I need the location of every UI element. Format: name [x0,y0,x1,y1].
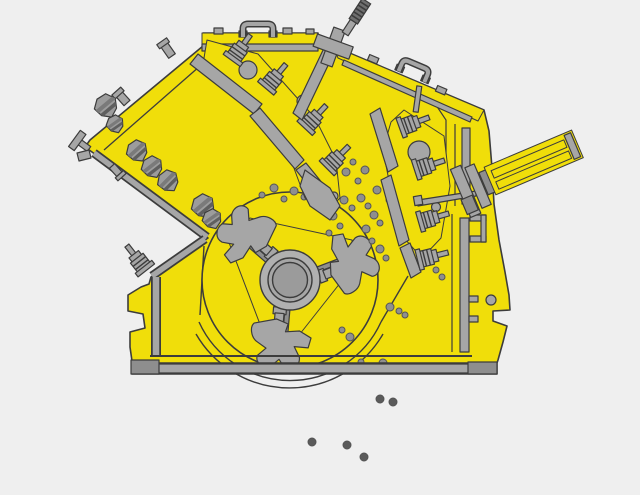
right-sill [468,362,497,374]
crushed-particle [377,220,383,226]
crushed-particle [342,168,350,176]
falling-debris-particle [376,395,384,403]
crushed-particle [346,333,354,341]
rear-pivot-hole [486,295,496,305]
crushed-particle [373,186,381,194]
crushed-particle [369,238,375,244]
crushed-particle [370,211,378,219]
crushed-particle [270,184,278,192]
rotor-hub-ring [273,263,308,298]
crushed-particle [361,166,369,174]
crushed-particle [433,267,439,273]
rotor-hub [260,250,320,310]
crushed-particle [402,312,408,318]
crushed-particle [357,194,365,202]
falling-debris-particle [360,453,368,461]
crushed-particle [376,245,384,253]
crushed-particle [362,225,370,233]
crushed-particle [339,327,345,333]
crushed-particle [349,205,355,211]
impact-crusher-diagram [0,0,640,495]
crushed-particle [383,255,389,261]
crushed-particle [326,230,332,236]
falling-debris-particle [308,438,316,446]
crushed-particle [337,223,343,229]
crushed-particle [439,274,445,280]
crushed-particle [355,178,361,184]
left-sill [131,360,159,374]
crushed-particle [350,159,356,165]
crushed-particle [259,192,265,198]
crushed-particle [290,187,298,195]
falling-debris-particle [343,441,351,449]
crushed-particle [396,308,402,314]
crushed-particle [340,196,348,204]
crushed-particle [281,196,287,202]
crushed-particle [365,203,371,209]
falling-debris-particle [389,398,397,406]
crushed-particle [386,303,394,311]
